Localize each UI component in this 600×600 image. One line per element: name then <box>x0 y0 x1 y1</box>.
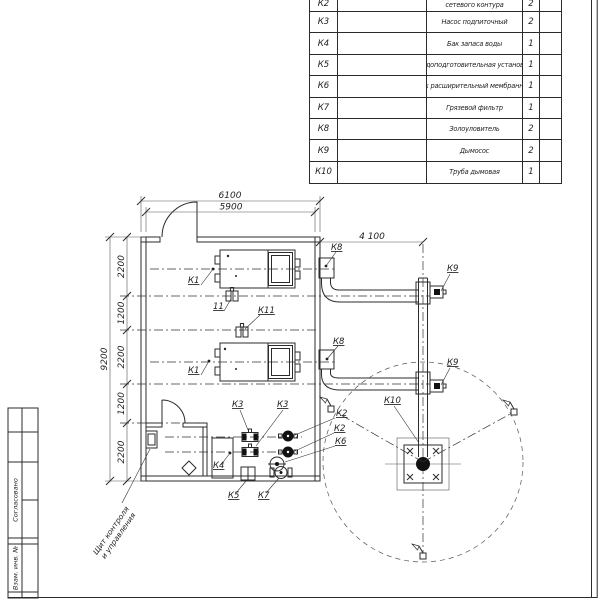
label-k3-1: К3 <box>232 400 243 410</box>
guy-anchor-bottom <box>412 544 426 559</box>
row-qty: 2 <box>523 0 540 11</box>
label-k9-1: К9 <box>447 264 458 274</box>
table-row: К9 Дымосос 2 <box>310 140 561 161</box>
entrance-door <box>162 202 197 237</box>
row-name: Бак расширительный мембранный <box>427 76 523 96</box>
label-valve-11: 11 <box>213 302 224 312</box>
row-qty: 2 <box>523 119 540 139</box>
row-designation <box>338 55 427 75</box>
label-k1-1: К1 <box>188 276 199 286</box>
label-k8-1: К8 <box>331 243 343 253</box>
row-qty: 1 <box>523 76 540 96</box>
table-row: К7 Грязевой фильтр 1 <box>310 98 561 119</box>
row-note <box>540 55 561 75</box>
floor-drain <box>182 461 196 475</box>
label-k8-2: К8 <box>333 337 345 347</box>
row-pos: К7 <box>310 98 338 118</box>
row-pos: К10 <box>310 162 338 183</box>
table-row: К4 Бак запаса воды 1 <box>310 33 561 54</box>
row-note <box>540 12 561 32</box>
row-name: Дымосос <box>427 140 523 160</box>
row-designation <box>338 119 427 139</box>
row-note <box>540 140 561 160</box>
feed-pump-k3-1 <box>242 429 258 442</box>
label-k2-1: К2 <box>336 409 347 419</box>
row-name: Бак запаса воды <box>427 33 523 53</box>
row-designation <box>338 140 427 160</box>
row-designation <box>338 12 427 32</box>
water-tank-k4 <box>212 438 233 478</box>
stamp-replacement-label: Взам. инв. № <box>12 546 20 590</box>
label-k11: К11 <box>258 306 275 316</box>
equipment-table: К2 сетевого контура 2 К3 Насос подпиточн… <box>309 0 562 184</box>
row-name: Труба дымовая <box>427 162 523 183</box>
row-note <box>540 162 561 183</box>
row-pos: К9 <box>310 140 338 160</box>
row-qty: 1 <box>523 33 540 53</box>
ash-catcher-k8-1 <box>319 258 334 278</box>
table-row: К2 сетевого контура 2 <box>310 0 561 12</box>
label-k1-2: К1 <box>188 366 199 376</box>
label-k7: К7 <box>258 491 270 501</box>
table-row: К5 Водоподготовительная установка 1 <box>310 55 561 76</box>
row-qty: 2 <box>523 12 540 32</box>
svg-text:5900: 5900 <box>220 203 243 213</box>
row-qty: 2 <box>523 140 540 160</box>
row-note <box>540 98 561 118</box>
guy-anchor-right <box>503 400 517 415</box>
building-walls <box>141 237 320 481</box>
row-designation <box>338 162 427 183</box>
table-row: К10 Труба дымовая 1 <box>310 162 561 183</box>
stamp-agreed-label: Согласовано <box>12 478 20 522</box>
row-note <box>540 0 561 11</box>
water-treatment-k5 <box>241 467 255 480</box>
label-k10: К10 <box>384 396 401 406</box>
table-row: К6 Бак расширительный мембранный 1 <box>310 76 561 97</box>
table-row: К8 Золоуловитель 2 <box>310 119 561 140</box>
row-designation <box>338 0 427 11</box>
row-note <box>540 33 561 53</box>
svg-text:1200: 1200 <box>117 301 127 324</box>
row-note <box>540 76 561 96</box>
row-name: сетевого контура <box>427 0 523 11</box>
label-k6: К6 <box>335 437 347 447</box>
label-k2-2: К2 <box>334 424 345 434</box>
network-pump-k2-2 <box>279 447 298 458</box>
row-name: Водоподготовительная установка <box>427 55 523 75</box>
label-k4: К4 <box>213 461 224 471</box>
label-k9-2: К9 <box>447 358 458 368</box>
label-k5: К5 <box>228 491 239 501</box>
row-note <box>540 119 561 139</box>
smoke-exhauster-k9-2 <box>430 380 446 392</box>
svg-text:9200: 9200 <box>100 347 110 370</box>
row-qty: 1 <box>523 162 540 183</box>
row-pos: К6 <box>310 76 338 96</box>
svg-text:6100: 6100 <box>219 191 242 201</box>
smoke-exhauster-k9-1 <box>430 286 446 298</box>
label-k3-2: К3 <box>277 400 288 410</box>
flue-duct-1 <box>322 278 419 302</box>
dim-vertical-chain: 2200 1200 2200 1200 2200 <box>105 233 146 485</box>
network-pump-k2-1 <box>279 431 298 442</box>
control-panel-note: Щит контроля и управления <box>91 449 150 562</box>
row-designation <box>338 76 427 96</box>
flue-duct-2 <box>322 369 419 390</box>
control-panel <box>146 431 157 448</box>
row-pos: К4 <box>310 33 338 53</box>
row-pos: К5 <box>310 55 338 75</box>
row-designation <box>338 98 427 118</box>
mud-filter-k7 <box>270 467 292 479</box>
row-qty: 1 <box>523 55 540 75</box>
svg-text:1200: 1200 <box>117 392 127 415</box>
row-pos: К3 <box>310 12 338 32</box>
table-row: К3 Насос подпиточный 2 <box>310 12 561 33</box>
dim-overall-height: 9200 <box>100 233 114 485</box>
svg-text:2200: 2200 <box>117 255 127 278</box>
feed-pump-k3-2 <box>242 444 258 457</box>
svg-text:2200: 2200 <box>117 440 127 463</box>
inner-door <box>162 400 185 423</box>
title-block-stamp: Согласовано Взам. инв. № <box>8 408 38 598</box>
valve-11 <box>226 288 238 302</box>
row-designation <box>338 33 427 53</box>
row-qty: 1 <box>523 98 540 118</box>
svg-text:2200: 2200 <box>117 345 127 368</box>
row-name: Насос подпиточный <box>427 12 523 32</box>
row-pos: К8 <box>310 119 338 139</box>
svg-text:4 100: 4 100 <box>359 232 385 242</box>
guy-anchor-left <box>320 397 334 412</box>
expansion-tank-k6 <box>268 457 286 471</box>
row-name: Золоуловитель <box>427 119 523 139</box>
row-pos: К2 <box>310 0 338 11</box>
row-name: Грязевой фильтр <box>427 98 523 118</box>
